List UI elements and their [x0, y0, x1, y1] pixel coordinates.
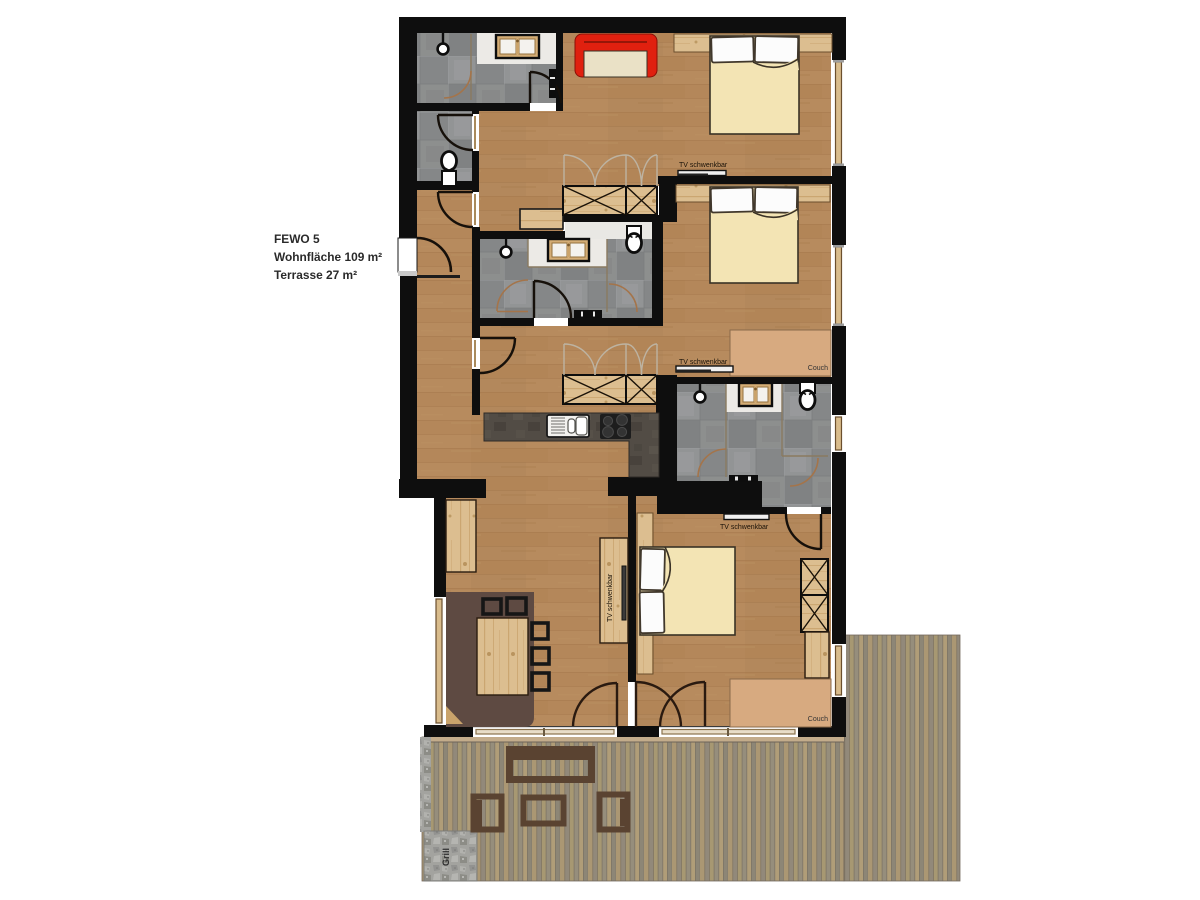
svg-text:TV schwenkbar: TV schwenkbar	[679, 359, 728, 366]
svg-text:TV schwenkbar: TV schwenkbar	[720, 524, 769, 531]
svg-text:Terrasse 27 m²: Terrasse 27 m²	[274, 268, 357, 282]
svg-text:TV schwenkbar: TV schwenkbar	[607, 573, 614, 622]
svg-text:Couch: Couch	[808, 365, 828, 372]
svg-text:FEWO 5: FEWO 5	[274, 232, 320, 246]
svg-text:Grill: Grill	[441, 848, 451, 866]
svg-text:TV schwenkbar: TV schwenkbar	[679, 162, 728, 169]
svg-text:Wohnfläche 109 m²: Wohnfläche 109 m²	[274, 250, 382, 264]
svg-text:Couch: Couch	[808, 716, 828, 723]
